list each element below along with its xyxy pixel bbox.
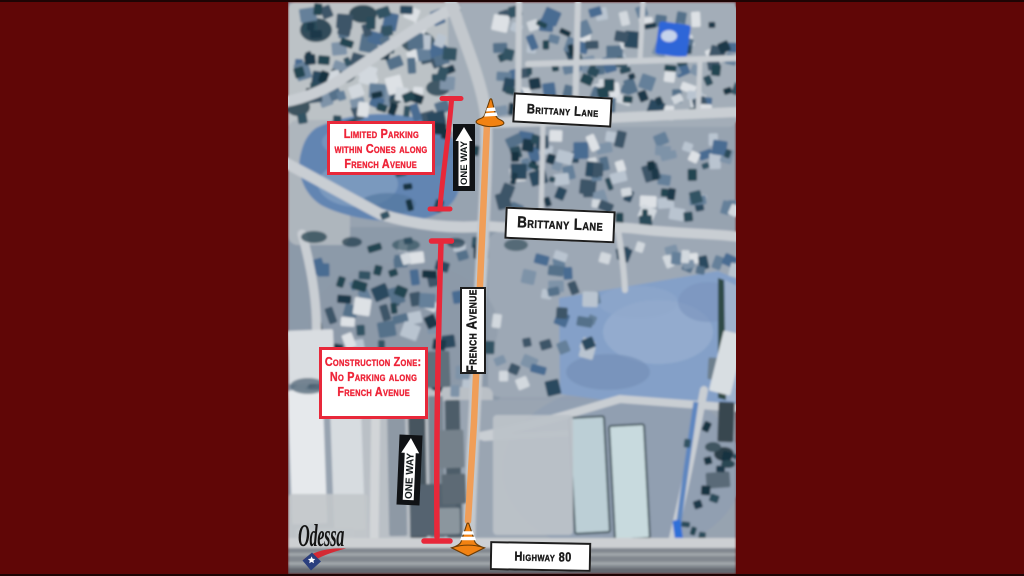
svg-text:ONE WAY: ONE WAY (459, 140, 470, 185)
svg-text:ONE WAY: ONE WAY (404, 452, 417, 499)
